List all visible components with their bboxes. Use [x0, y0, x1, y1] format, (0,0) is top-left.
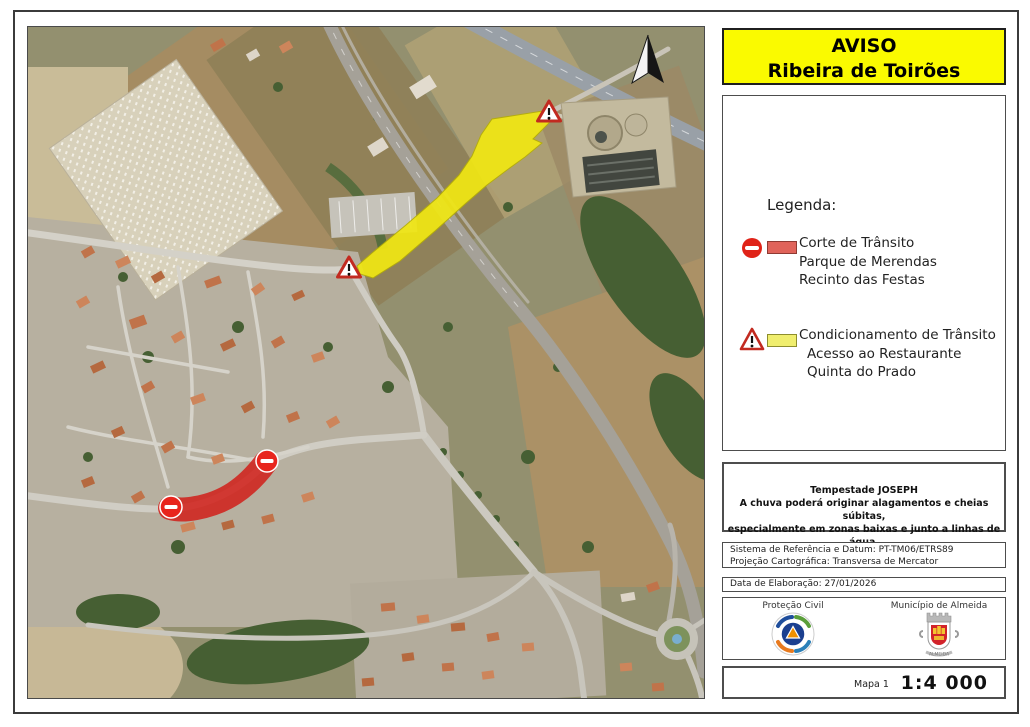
no-entry-marker	[160, 496, 182, 518]
footer-box: Mapa 1 1:4 000	[722, 666, 1006, 699]
north-arrow-icon	[632, 35, 664, 83]
warning-triangle-icon	[739, 327, 765, 355]
storm-text-line1: A chuva poderá originar alagamentos e ch…	[724, 497, 1004, 523]
storm-title: Tempestade JOSEPH	[724, 484, 1004, 497]
map-frame	[27, 26, 705, 699]
date-box: Data de Elaboração: 27/01/2026	[722, 577, 1006, 592]
notice-location: Ribeira de Toirões	[724, 59, 1004, 84]
water-treatment-plant	[561, 97, 676, 197]
roundabout	[660, 622, 694, 656]
projection-line: Projeção Cartográfica: Transversa de Mer…	[730, 556, 998, 568]
map-number: Mapa 1	[854, 679, 889, 690]
map-scale: 1:4 000	[901, 672, 988, 694]
yellow-area-swatch	[767, 334, 797, 347]
reference-box: Sistema de Referência e Datum: PT-TM06/E…	[722, 542, 1006, 568]
credits-box: Proteção Civil Município de Almeida	[722, 597, 1006, 660]
notice-type: AVISO	[724, 34, 1004, 59]
municipality-label: Município de Almeida	[875, 601, 1003, 611]
municipality-motto: ALMEIDA	[929, 652, 950, 658]
civil-protection-logo-icon	[770, 611, 816, 657]
satellite-map	[28, 27, 704, 698]
elaboration-date: Data de Elaboração: 27/01/2026	[730, 578, 998, 591]
municipality-credit: Município de Almeida ALMEIDA	[875, 601, 1003, 662]
civil-protection-credit: Proteção Civil	[733, 601, 853, 660]
legend-box: Legenda: Corte de Trânsito Parque de Mer…	[722, 95, 1006, 451]
civil-protection-label: Proteção Civil	[733, 601, 853, 611]
municipality-coat-of-arms-icon: ALMEIDA	[917, 611, 961, 659]
legend-item-closure: Corte de Trânsito Parque de Merendas Rec…	[799, 234, 937, 290]
no-entry-marker	[256, 450, 278, 472]
notice-page: AVISO Ribeira de Toirões Legenda: Corte …	[0, 0, 1030, 727]
legend-item-conditioning: Condicionamento de Trânsito Acesso ao Re…	[799, 326, 996, 382]
datum-line: Sistema de Referência e Datum: PT-TM06/E…	[730, 544, 998, 556]
no-entry-icon	[742, 238, 762, 258]
red-area-swatch	[767, 241, 797, 254]
legend-heading: Legenda:	[767, 196, 836, 214]
storm-notice-box: Tempestade JOSEPH A chuva poderá origina…	[722, 462, 1006, 532]
title-box: AVISO Ribeira de Toirões	[722, 28, 1006, 85]
